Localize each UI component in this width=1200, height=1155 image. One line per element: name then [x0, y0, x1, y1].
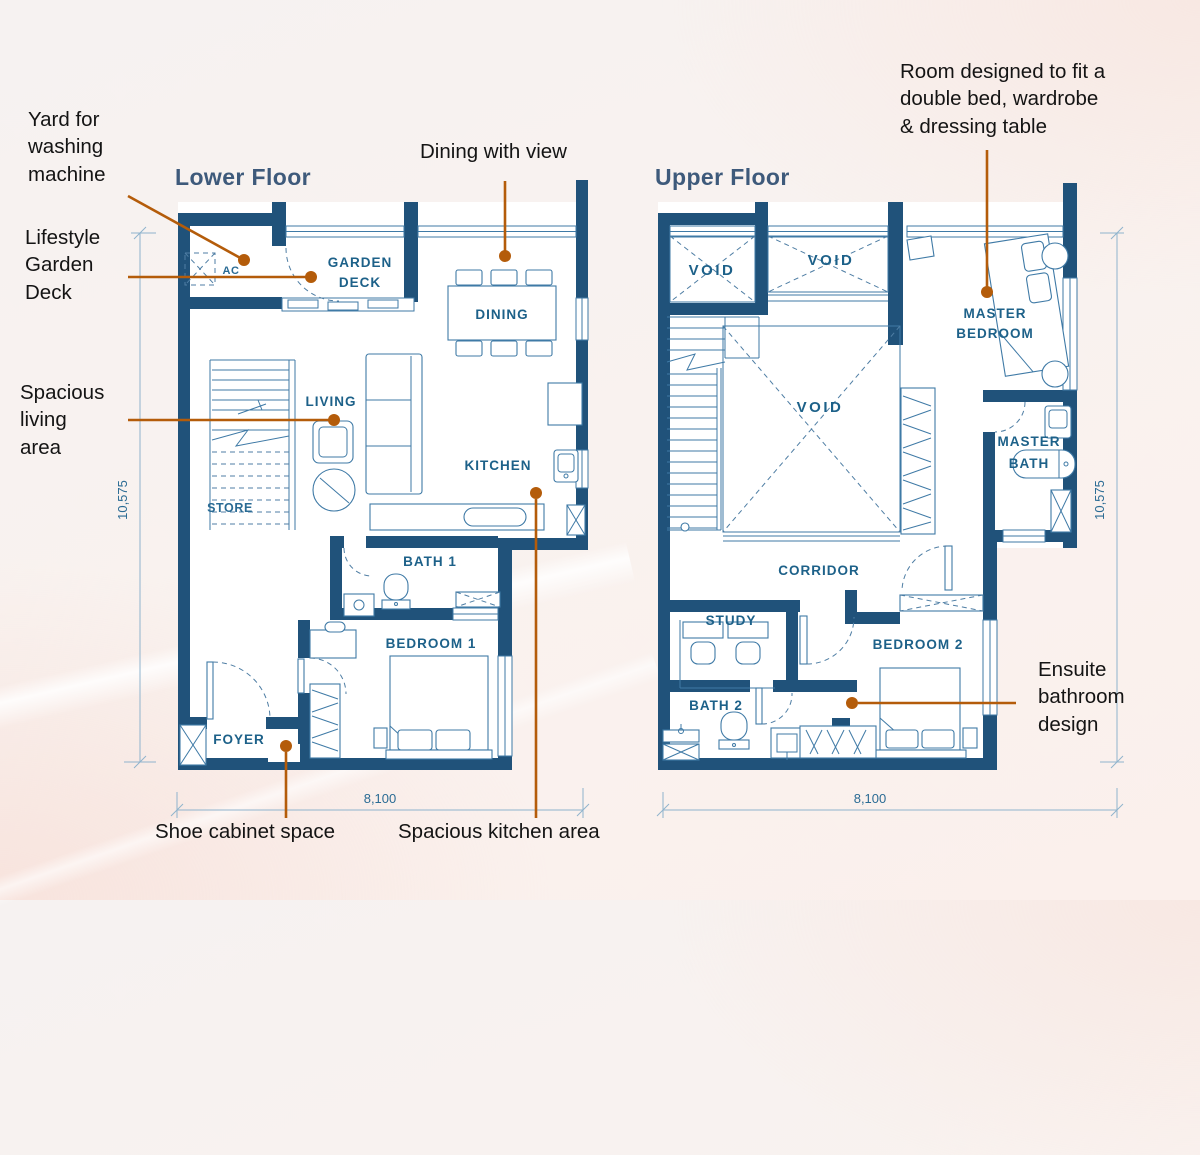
annotation-kitchen-area: Spacious kitchen area: [398, 818, 600, 845]
annotation-shoe-cabinet: Shoe cabinet space: [155, 818, 335, 845]
upper-width-dimension: 8,100: [854, 791, 887, 806]
annotation-dining-view: Dining with view: [420, 138, 567, 165]
annotation-yard: Yard for washing machine: [28, 106, 106, 188]
annotation-living-area: Spacious living area: [20, 379, 104, 461]
lower-height-dimension: 10,575: [115, 480, 130, 520]
dimension-lines: 10,575 8,100 10,575 8,100: [115, 227, 1124, 818]
leader-lines: [128, 150, 1016, 818]
annotation-garden-deck: Lifestyle Garden Deck: [25, 224, 100, 306]
page: { "titles": {"lower": "Lower Floor", "up…: [0, 0, 1200, 900]
annotation-master-room: Room designed to fit a double bed, wardr…: [900, 58, 1105, 140]
lower-width-dimension: 8,100: [364, 791, 397, 806]
upper-height-dimension: 10,575: [1092, 480, 1107, 520]
annotation-ensuite: Ensuite bathroom design: [1038, 656, 1125, 738]
